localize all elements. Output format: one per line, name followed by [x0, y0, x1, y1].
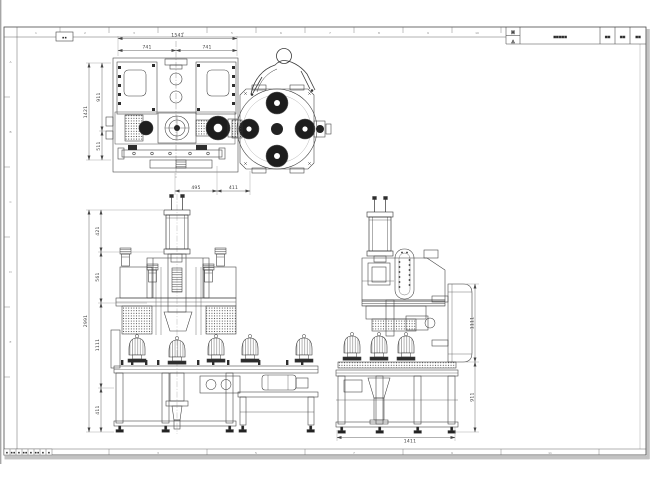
sheet-size-text: ▪▪ [635, 34, 641, 39]
zone-label: 3 [133, 31, 135, 35]
revision-cell: ▪ [48, 451, 50, 455]
corner-mark-box: ▪▪ [56, 32, 73, 41]
side-cylinder [120, 248, 131, 266]
dim-plan-total-width: 1541 [171, 32, 184, 38]
leveling-foot [338, 427, 345, 433]
zone-label: 11 [548, 451, 552, 455]
sheet-shadow-right [647, 29, 650, 459]
dim-plan-lower-height: 511 [96, 141, 102, 150]
dim-plan-upper-height: 911 [96, 92, 102, 101]
leveling-foot [376, 427, 383, 433]
zone-label: 7 [329, 31, 331, 35]
dim-side-lower: 911 [469, 392, 475, 401]
drawing-name-text: ▪▪▪▪▪ [553, 34, 567, 39]
spindle-bell [295, 335, 313, 363]
leveling-foot [239, 426, 246, 432]
revision-cell: ▪ [6, 451, 8, 455]
zone-label: 1 [35, 31, 37, 35]
revision-cell: ▪ [42, 451, 44, 455]
zone-label: 7 [353, 451, 355, 455]
dim-plan-total-height: 1421 [83, 106, 89, 119]
leveling-foot [226, 426, 233, 432]
zone-label: 2 [84, 31, 86, 35]
zone-ticks-left [4, 97, 10, 377]
zone-label: 5 [255, 451, 257, 455]
rotary-table [232, 85, 331, 173]
scale-text: ▪▪ [620, 34, 626, 39]
dim-front-seg2: 561 [95, 272, 101, 281]
dim-plan-half-left: 741 [142, 44, 151, 50]
zone-label: C [9, 200, 11, 204]
side-cylinder [147, 264, 158, 282]
zone-label: D [9, 270, 12, 274]
drawing-code-text: ▪▪ [605, 34, 611, 39]
outer-border [4, 27, 646, 455]
zone-label: B [9, 130, 11, 134]
zone-label: 10 [475, 31, 479, 35]
spindle-bell [207, 335, 225, 363]
leveling-foot [448, 427, 455, 433]
sheet-shadow-bottom [5, 456, 650, 459]
leveling-foot [414, 427, 421, 433]
dim-front-seg3: 1111 [95, 339, 101, 352]
spindle-bell [128, 335, 146, 363]
revision-cell: ▪ [18, 451, 20, 455]
zone-label: 5 [231, 31, 233, 35]
bolt-marks [118, 64, 235, 111]
side-cylinder [203, 264, 214, 282]
zone-label: A [9, 60, 12, 64]
operator-figure [251, 49, 315, 96]
side-cylinder [215, 248, 226, 266]
corner-mark-text: ▪▪ [62, 36, 67, 40]
dim-side-upper: 1111 [469, 317, 475, 330]
zone-labels-bottom: 3 5 7 9 11 [157, 451, 552, 455]
dim-front-seg1: 421 [95, 226, 101, 235]
revision-cell: ▪▪ [23, 451, 28, 455]
revision-strip: ▪ ▪▪ ▪ ▪▪ ▪ ▪▪ ▪ ▪ [4, 449, 52, 455]
spindle-bell [343, 333, 361, 361]
zone-labels-left: A B C D E [9, 60, 12, 344]
projection-symbol-top: M [511, 30, 515, 35]
dim-front-overall: 2991 [83, 315, 89, 328]
leveling-foot [116, 426, 123, 432]
main-cylinder-side [367, 197, 393, 257]
energy-chain [395, 249, 414, 299]
revision-cell: ▪▪ [11, 451, 16, 455]
spindle-bell [241, 335, 259, 363]
plan-view [106, 41, 331, 178]
zone-label: 9 [451, 451, 453, 455]
zone-label: 3 [157, 451, 159, 455]
spindle-bell [370, 333, 388, 361]
plan-dimensions: 1541 741 741 1421 911 511 495 411 [83, 32, 250, 195]
projection-symbol-bottom: △ [511, 38, 515, 43]
zone-label: 6 [280, 31, 282, 35]
dim-plan-half-right: 741 [202, 44, 211, 50]
dim-plan-foot-b: 411 [229, 185, 238, 191]
dim-front-seg4: 411 [95, 405, 101, 414]
leveling-foot [307, 426, 314, 432]
revision-cell: ▪▪ [35, 451, 40, 455]
dim-side-width: 1411 [404, 439, 417, 445]
main-cylinder [164, 195, 190, 255]
zone-label: 9 [427, 31, 429, 35]
drawing-sheet: 1 2 3 4 5 6 7 8 9 10 3 5 7 9 11 A B C D … [0, 0, 652, 488]
revision-cell: ▪ [30, 451, 32, 455]
spindle-bell [397, 333, 415, 361]
zone-label: E [10, 340, 12, 344]
mount-bolts [121, 360, 303, 365]
side-view [336, 197, 472, 434]
cad-canvas: 1 2 3 4 5 6 7 8 9 10 3 5 7 9 11 A B C D … [0, 0, 652, 488]
dim-plan-foot-a: 495 [191, 185, 200, 191]
spindle-bell [168, 337, 186, 365]
side-cabinet [448, 284, 472, 362]
leveling-foot [162, 426, 169, 432]
title-block: M △ ▪▪▪▪▪ ▪▪ ▪▪ ▪▪ [506, 27, 646, 44]
zone-labels-top: 1 2 3 4 5 6 7 8 9 10 [35, 31, 479, 35]
zone-label: 8 [378, 31, 380, 35]
front-view [111, 194, 318, 434]
